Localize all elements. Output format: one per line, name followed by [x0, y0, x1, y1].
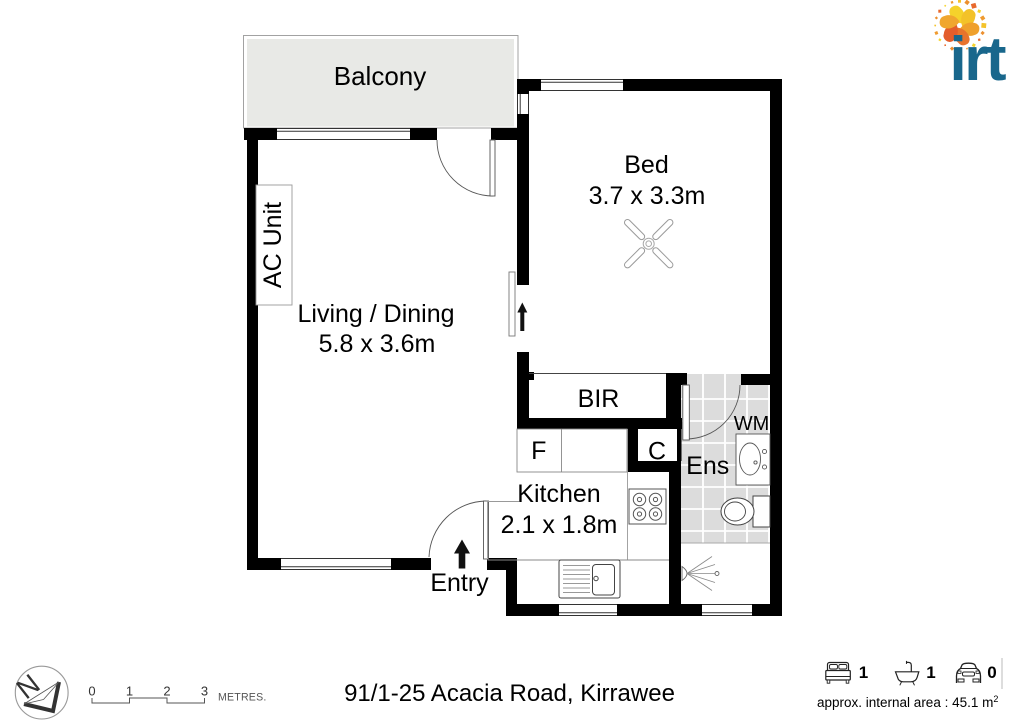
svg-text:AC Unit: AC Unit — [259, 202, 287, 288]
svg-text:1: 1 — [926, 663, 935, 682]
svg-text:Ens: Ens — [686, 452, 729, 480]
svg-text:0: 0 — [88, 684, 95, 699]
svg-text:5.8 x 3.6m: 5.8 x 3.6m — [319, 330, 436, 358]
svg-text:irt: irt — [950, 25, 1006, 94]
svg-text:C: C — [648, 438, 666, 466]
svg-text:WM: WM — [734, 413, 770, 435]
svg-text:2.1 x 1.8m: 2.1 x 1.8m — [501, 511, 618, 539]
svg-text:1: 1 — [126, 684, 133, 699]
svg-text:Entry: Entry — [430, 569, 489, 597]
svg-text:3.7 x 3.3m: 3.7 x 3.3m — [589, 182, 706, 210]
svg-text:2: 2 — [163, 684, 170, 699]
svg-text:approx. internal area : 45.1 m: approx. internal area : 45.1 m2 — [817, 694, 998, 710]
svg-text:1: 1 — [859, 663, 868, 682]
svg-text:91/1-25 Acacia Road, Kirrawee: 91/1-25 Acacia Road, Kirrawee — [344, 680, 675, 707]
svg-text:BIR: BIR — [578, 385, 620, 413]
svg-text:METRES.: METRES. — [218, 692, 267, 704]
svg-text:3: 3 — [201, 684, 208, 699]
svg-text:Balcony: Balcony — [334, 61, 427, 91]
svg-text:Living / Dining: Living / Dining — [297, 300, 454, 328]
svg-text:Bed: Bed — [624, 151, 668, 179]
svg-text:0: 0 — [987, 663, 996, 682]
svg-text:F: F — [531, 437, 546, 465]
svg-text:Kitchen: Kitchen — [517, 480, 600, 508]
